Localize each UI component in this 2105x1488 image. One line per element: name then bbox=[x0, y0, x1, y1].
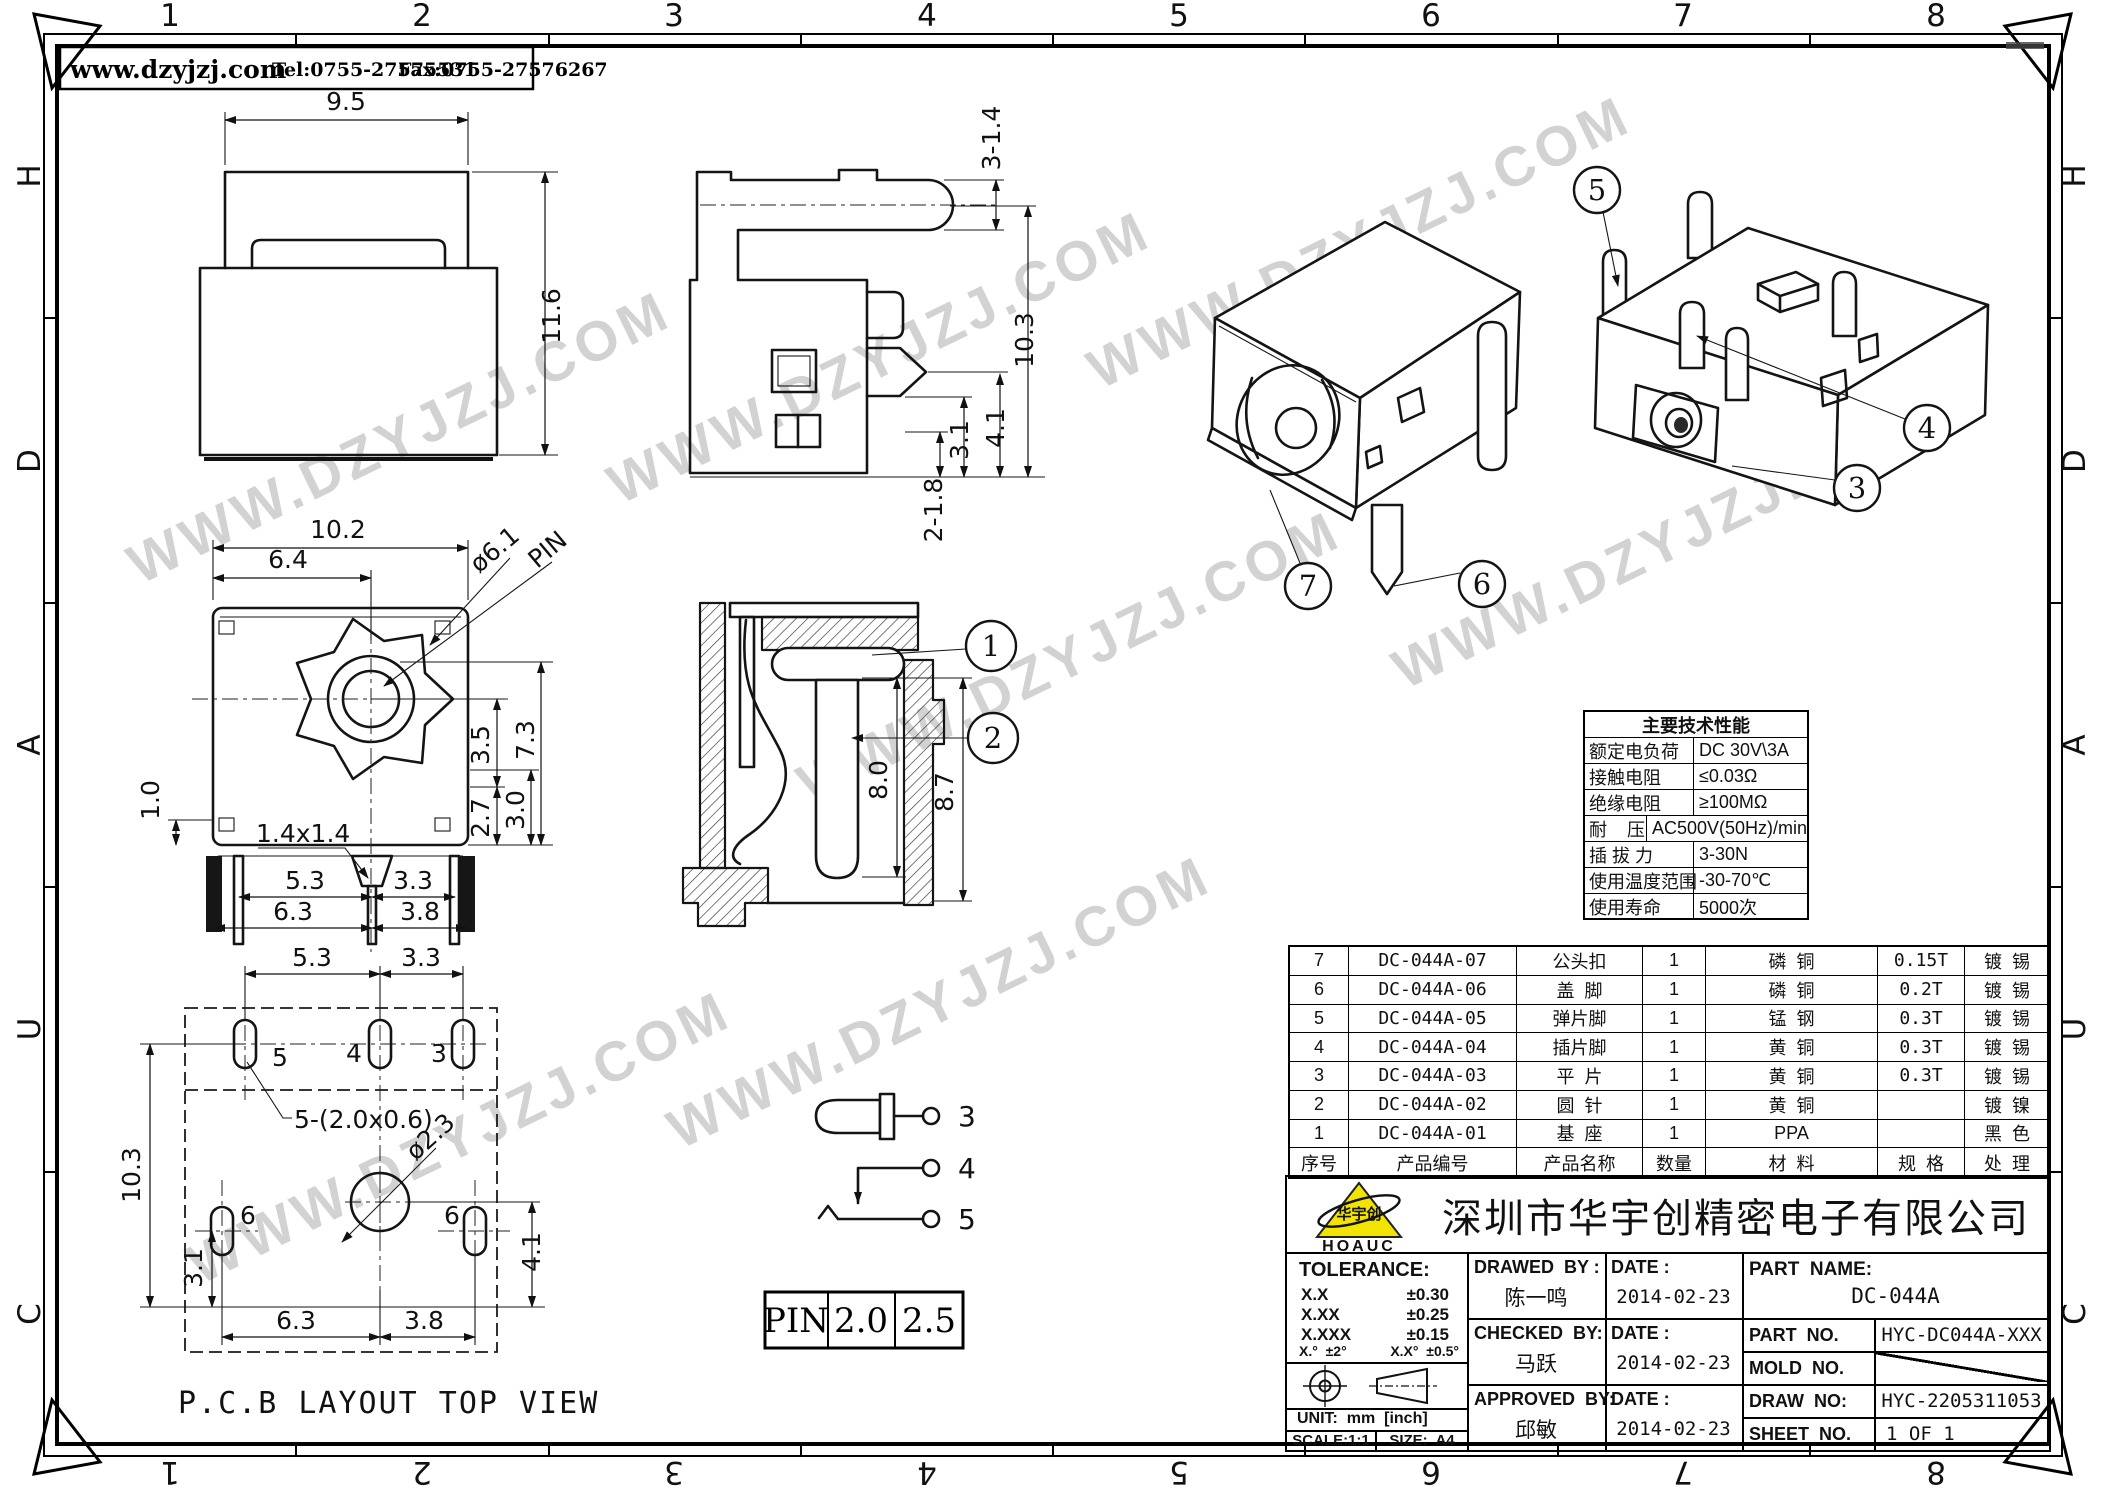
bom-cell: 1 bbox=[1643, 1033, 1706, 1061]
tol-angle-2: X.X° ±0.5° bbox=[1390, 1343, 1459, 1359]
bom-cell: 圆 针 bbox=[1517, 1091, 1643, 1119]
bom-cell: 盖 脚 bbox=[1517, 976, 1643, 1004]
bom-cell: 0.15T bbox=[1878, 947, 1965, 975]
size-note: SIZE: A4 bbox=[1377, 1430, 1467, 1450]
dim-dia-6-1: ø6.1 bbox=[464, 521, 525, 579]
unit-note: UNIT: mm [inch] bbox=[1297, 1410, 1428, 1428]
bom-cell: 黄 铜 bbox=[1706, 1033, 1878, 1061]
spec-key: 接触电阻 bbox=[1585, 764, 1694, 789]
spec-value: 5000次 bbox=[1694, 894, 1757, 919]
bom-cell: 4 bbox=[1290, 1033, 1349, 1061]
zone-label: U bbox=[12, 1018, 48, 1041]
checked-by-name: 马跃 bbox=[1467, 1343, 1605, 1383]
bom-cell: DC-044A-04 bbox=[1349, 1033, 1517, 1061]
callout-number: 7 bbox=[1299, 569, 1317, 603]
dim-5-3: 5.3 bbox=[292, 943, 332, 972]
bom-cell: 7 bbox=[1290, 947, 1349, 975]
dim-6-3: 6.3 bbox=[273, 897, 313, 926]
bom-cell: DC-044A-05 bbox=[1349, 1005, 1517, 1033]
spec-key: 插 拔 力 bbox=[1585, 842, 1694, 867]
bom-header-cell: 数量 bbox=[1643, 1148, 1706, 1177]
dim-4-1: 4.1 bbox=[981, 408, 1010, 448]
bom-cell: DC-044A-06 bbox=[1349, 976, 1517, 1004]
approved-by-name: 邱敏 bbox=[1467, 1409, 1605, 1449]
bom-header-cell: 产品名称 bbox=[1517, 1148, 1643, 1177]
part-no-value: HYC-DC044A-XXX bbox=[1874, 1318, 2049, 1351]
spec-value: 3-30N bbox=[1694, 842, 1748, 867]
zone-label: H bbox=[2057, 164, 2093, 187]
zone-label: 4 bbox=[917, 0, 937, 34]
dim-2-1-8: 2-1.8 bbox=[919, 478, 948, 543]
bom-cell: 0.2T bbox=[1878, 976, 1965, 1004]
mold-no-blank bbox=[1876, 1353, 2047, 1382]
section-view: 8.0 8.7 1 2 bbox=[683, 603, 1018, 926]
schematic: 3 4 5 bbox=[816, 1094, 976, 1236]
callout-6: 6 bbox=[1394, 561, 1505, 607]
dim-8-7: 8.7 bbox=[930, 772, 959, 812]
zone-label: A bbox=[2057, 734, 2093, 755]
dim-1-4x1-4: 1.4x1.4 bbox=[256, 819, 350, 848]
checked-by-label: CHECKED BY: bbox=[1474, 1323, 1603, 1344]
zone-label: 2 bbox=[412, 1454, 432, 1488]
dim-8-0: 8.0 bbox=[864, 760, 893, 800]
bom-cell: 2 bbox=[1290, 1091, 1349, 1119]
bom-header-cell: 处 理 bbox=[1965, 1148, 2049, 1177]
bom-cell: 镀 锡 bbox=[1965, 1062, 2049, 1090]
spec-table: 主要技术性能 额定电负荷DC 30V\3A 接触电阻≤0.03Ω 绝缘电阻≥10… bbox=[1583, 710, 1809, 920]
dim-1-0: 1.0 bbox=[136, 780, 165, 820]
fax: Fax:0755-27576267 bbox=[398, 59, 608, 81]
tolerance-label: TOLERANCE: bbox=[1299, 1259, 1430, 1282]
pcb-view-title: P.C.B LAYOUT TOP VIEW bbox=[178, 1386, 599, 1421]
callout-number: 6 bbox=[1473, 567, 1491, 601]
dim-9-5: 9.5 bbox=[326, 87, 366, 116]
tol-val: ±0.25 bbox=[1407, 1305, 1449, 1325]
zone-label: 6 bbox=[1421, 1454, 1441, 1488]
bom-cell: 黑 色 bbox=[1965, 1120, 2049, 1148]
bom-header-cell: 序号 bbox=[1290, 1148, 1349, 1177]
zone-label: D bbox=[12, 449, 48, 473]
zone-label: 6 bbox=[1421, 0, 1441, 34]
dim-7-3: 7.3 bbox=[511, 720, 540, 760]
spec-key: 额定电负荷 bbox=[1585, 738, 1694, 763]
bom-cell bbox=[1878, 1091, 1965, 1119]
zone-label: 2 bbox=[412, 0, 432, 34]
bom-cell: 1 bbox=[1643, 1005, 1706, 1033]
zone-label: D bbox=[2057, 449, 2093, 473]
bom-cell: 6 bbox=[1290, 976, 1349, 1004]
spec-value: AC500V(50Hz)/min bbox=[1647, 816, 1807, 841]
bom-cell: PPA bbox=[1706, 1120, 1878, 1148]
dim-2-7: 2.7 bbox=[466, 798, 495, 838]
zone-label: C bbox=[12, 1303, 48, 1325]
spec-value: ≥100MΩ bbox=[1694, 790, 1767, 815]
bom-cell: 1 bbox=[1643, 1120, 1706, 1148]
bom-cell: 磷 铜 bbox=[1706, 976, 1878, 1004]
bom-cell: 磷 铜 bbox=[1706, 947, 1878, 975]
bom-header-cell: 产品编号 bbox=[1349, 1148, 1517, 1177]
spec-value: -30-70℃ bbox=[1694, 868, 1771, 893]
date-label: DATE : bbox=[1611, 1389, 1670, 1410]
pin-2-0: 2.0 bbox=[834, 1301, 888, 1341]
draw-no-value: HYC-2205311053 bbox=[1874, 1384, 2049, 1417]
bom-cell: 1 bbox=[1290, 1120, 1349, 1148]
drawed-by-name: 陈一鸣 bbox=[1467, 1277, 1605, 1317]
tol-key: X.X bbox=[1301, 1285, 1328, 1305]
bom-header-cell: 规 格 bbox=[1878, 1148, 1965, 1177]
bom-cell: 平 片 bbox=[1517, 1062, 1643, 1090]
zone-label: C bbox=[2057, 1303, 2093, 1325]
slot-size-note: 5-(2.0x0.6) bbox=[294, 1105, 433, 1134]
callout-number: 5 bbox=[1588, 173, 1606, 207]
tol-val: ±0.30 bbox=[1407, 1285, 1449, 1305]
projection-symbol-icon bbox=[1295, 1365, 1460, 1407]
side-leg-pin bbox=[206, 856, 222, 932]
callout-number: 2 bbox=[984, 721, 1002, 755]
bom-cell: DC-044A-07 bbox=[1349, 947, 1517, 975]
front-view: 10.2 6.4 ø6.1 PIN 7.3 3.5 2.7 3.0 1.0 1.… bbox=[136, 515, 573, 952]
dim-5-3: 5.3 bbox=[285, 866, 325, 895]
sheet-no-value: 1 OF 1 bbox=[1874, 1417, 2061, 1450]
zone-label: 3 bbox=[664, 0, 684, 34]
logo-text: HOAUC bbox=[1322, 1238, 1396, 1253]
watermark-text: WWW.DZYJZJ.COM bbox=[178, 978, 741, 1296]
terminal-4: 4 bbox=[958, 1152, 976, 1185]
side-leg-pin bbox=[459, 856, 475, 932]
zone-label: U bbox=[2057, 1018, 2093, 1041]
company-name: 深圳市华宇创精密电子有限公司 bbox=[1427, 1183, 2045, 1247]
bom-header-row: 序号产品编号产品名称数量材 料规 格处 理 bbox=[1290, 1148, 2049, 1177]
zone-label: A bbox=[12, 734, 48, 755]
tol-val: ±0.15 bbox=[1407, 1325, 1449, 1345]
bom-cell: 1 bbox=[1643, 976, 1706, 1004]
bom-row: 7DC-044A-07公头扣1磷 铜0.15T镀 锡 bbox=[1290, 947, 2049, 976]
bom-row: 4DC-044A-04插片脚1黄 铜0.3T镀 锡 bbox=[1290, 1033, 2049, 1062]
zone-label: 3 bbox=[664, 1454, 684, 1488]
bom-row: 2DC-044A-02圆 针1黄 铜镀 镍 bbox=[1290, 1091, 2049, 1120]
bom-cell: 0.3T bbox=[1878, 1033, 1965, 1061]
part-name-value: DC-044A bbox=[1742, 1275, 2049, 1317]
bom-cell: DC-044A-02 bbox=[1349, 1091, 1517, 1119]
spec-key: 耐 压 bbox=[1585, 816, 1647, 841]
dim-10-2: 10.2 bbox=[310, 515, 366, 544]
dim-3-1: 3.1 bbox=[945, 420, 974, 460]
spec-value: ≤0.03Ω bbox=[1694, 764, 1757, 789]
drawed-date: 2014-02-23 bbox=[1605, 1277, 1742, 1317]
bom-cell: DC-044A-01 bbox=[1349, 1120, 1517, 1148]
bom-cell: 镀 锡 bbox=[1965, 1005, 2049, 1033]
bom-cell: 锰 钢 bbox=[1706, 1005, 1878, 1033]
dim-3-5: 3.5 bbox=[466, 725, 495, 765]
dim-3-1: 3.1 bbox=[179, 1248, 208, 1288]
bom-cell: 插片脚 bbox=[1517, 1033, 1643, 1061]
scale-note: SCALE:1:1 bbox=[1287, 1430, 1375, 1450]
drawed-by-label: DRAWED BY : bbox=[1474, 1257, 1600, 1278]
dim-3-8: 3.8 bbox=[400, 897, 440, 926]
pad-label-5: 5 bbox=[272, 1043, 288, 1072]
approved-date: 2014-02-23 bbox=[1605, 1409, 1742, 1449]
pad-label-6: 6 bbox=[444, 1201, 460, 1230]
pad-label-3: 3 bbox=[431, 1039, 447, 1068]
company-logo: 华宇创 HOAUC bbox=[1303, 1179, 1415, 1253]
sheet-no-label: SHEET NO. bbox=[1749, 1424, 1851, 1445]
bom-cell: 黄 铜 bbox=[1706, 1091, 1878, 1119]
bom-cell: 公头扣 bbox=[1517, 947, 1643, 975]
micro-stamp bbox=[2006, 42, 2044, 49]
tol-key: X.XX bbox=[1301, 1305, 1340, 1325]
callout-number: 4 bbox=[1918, 411, 1936, 445]
zone-label: 8 bbox=[1926, 1454, 1946, 1488]
zone-label: H bbox=[12, 164, 48, 187]
tol-key: X.XXX bbox=[1301, 1325, 1351, 1345]
date-label: DATE : bbox=[1611, 1323, 1670, 1344]
terminal-5: 5 bbox=[958, 1203, 976, 1236]
bom-cell: 黄 铜 bbox=[1706, 1062, 1878, 1090]
dim-3-3: 3.3 bbox=[401, 943, 441, 972]
zone-label: 1 bbox=[160, 1454, 180, 1488]
zone-label: 5 bbox=[1169, 1454, 1189, 1488]
bom-table: 7DC-044A-07公头扣1磷 铜0.15T镀 锡 6DC-044A-06盖 … bbox=[1288, 945, 2051, 1179]
spec-key: 使用寿命 bbox=[1585, 894, 1694, 919]
dim-3-3: 3.3 bbox=[393, 866, 433, 895]
pin-label: PIN bbox=[763, 1301, 829, 1341]
bom-cell: 镀 镍 bbox=[1965, 1091, 2049, 1119]
side-leg bbox=[1478, 322, 1506, 470]
bom-cell: 0.3T bbox=[1878, 1005, 1965, 1033]
callout-number: 1 bbox=[982, 629, 1000, 663]
title-block: 华宇创 HOAUC 深圳市华宇创精密电子有限公司 TOLERANCE: X.X±… bbox=[1285, 1175, 2051, 1452]
bom-header-cell: 材 料 bbox=[1706, 1148, 1878, 1177]
zone-label: 7 bbox=[1673, 1454, 1693, 1488]
drawing-sheet: .ol{fill:none;stroke:#141414;stroke-widt… bbox=[0, 0, 2105, 1488]
bom-cell: 1 bbox=[1643, 1091, 1706, 1119]
center-pin bbox=[816, 680, 858, 878]
bom-cell: 3 bbox=[1290, 1062, 1349, 1090]
pad-label-4: 4 bbox=[346, 1039, 362, 1068]
approved-by-label: APPROVED BY: bbox=[1474, 1389, 1615, 1410]
dim-6-3: 6.3 bbox=[276, 1306, 316, 1335]
spec-value: DC 30V\3A bbox=[1694, 738, 1789, 763]
callout-number: 3 bbox=[1848, 471, 1866, 505]
dim-3-1-4: 3-1.4 bbox=[977, 106, 1006, 171]
logo-cn-text: 华宇创 bbox=[1336, 1205, 1381, 1223]
mold-no-label: MOLD NO. bbox=[1749, 1358, 1844, 1379]
dim-11-6: 11.6 bbox=[537, 288, 566, 344]
bom-cell: DC-044A-03 bbox=[1349, 1062, 1517, 1090]
dim-3-8: 3.8 bbox=[404, 1306, 444, 1335]
spec-key: 绝缘电阻 bbox=[1585, 790, 1694, 815]
bom-row: 6DC-044A-06盖 脚1磷 铜0.2T镀 锡 bbox=[1290, 976, 2049, 1005]
pcb-layout-view: 5 4 3 6 6 5.3 3.3 10.3 3.1 4.1 6.3 3.8 5… bbox=[117, 943, 599, 1421]
tol-angle-1: X.° ±2° bbox=[1299, 1343, 1347, 1359]
dim-3-0: 3.0 bbox=[501, 790, 530, 830]
bom-cell: 弹片脚 bbox=[1517, 1005, 1643, 1033]
bom-cell: 1 bbox=[1643, 947, 1706, 975]
pad-label-6: 6 bbox=[240, 1201, 256, 1230]
dim-6-4: 6.4 bbox=[268, 545, 308, 574]
part-no-label: PART NO. bbox=[1749, 1325, 1839, 1346]
dim-4-1: 4.1 bbox=[517, 1232, 546, 1272]
bottom-pin bbox=[1372, 505, 1402, 594]
dim-10-3: 10.3 bbox=[117, 1147, 146, 1203]
bom-cell: 0.3T bbox=[1878, 1062, 1965, 1090]
zone-label: 5 bbox=[1169, 0, 1189, 34]
bom-row: 3DC-044A-03平 片1黄 铜0.3T镀 锡 bbox=[1290, 1062, 2049, 1091]
iso-view-rear: 5 4 3 bbox=[1574, 167, 1988, 511]
website: www.dzyjzj.com bbox=[69, 55, 286, 84]
bom-row: 1DC-044A-01基 座1PPA黑 色 bbox=[1290, 1120, 2049, 1149]
checked-date: 2014-02-23 bbox=[1605, 1343, 1742, 1383]
spec-title: 主要技术性能 bbox=[1585, 712, 1807, 738]
bom-cell: 5 bbox=[1290, 1005, 1349, 1033]
bom-cell: 1 bbox=[1643, 1062, 1706, 1090]
zone-label: 4 bbox=[917, 1454, 937, 1488]
bom-cell: 基 座 bbox=[1517, 1120, 1643, 1148]
company-header: www.dzyjzj.com Tel:0755-27575531 Fax:075… bbox=[60, 47, 608, 89]
terminal-3: 3 bbox=[958, 1100, 976, 1133]
bom-cell: 镀 锡 bbox=[1965, 947, 2049, 975]
bom-cell bbox=[1878, 1120, 1965, 1148]
zone-label: 8 bbox=[1926, 0, 1946, 34]
bom-cell: 镀 锡 bbox=[1965, 1033, 2049, 1061]
pin-size-table: PIN 2.0 2.5 bbox=[763, 1292, 963, 1348]
spec-key: 使用温度范围 bbox=[1585, 868, 1694, 893]
bom-cell: 镀 锡 bbox=[1965, 976, 2049, 1004]
zone-label: 7 bbox=[1673, 0, 1693, 34]
zone-label: 1 bbox=[160, 0, 180, 34]
watermark-text: WWW.DZYJZJ.COM bbox=[598, 198, 1161, 516]
pin-2-5: 2.5 bbox=[902, 1301, 956, 1341]
dim-pin-label: PIN bbox=[522, 525, 572, 574]
dim-10-3: 10.3 bbox=[1010, 312, 1039, 368]
date-label: DATE : bbox=[1611, 1257, 1670, 1278]
bom-row: 5DC-044A-05弹片脚1锰 钢0.3T镀 锡 bbox=[1290, 1005, 2049, 1034]
draw-no-label: DRAW NO: bbox=[1749, 1391, 1847, 1412]
